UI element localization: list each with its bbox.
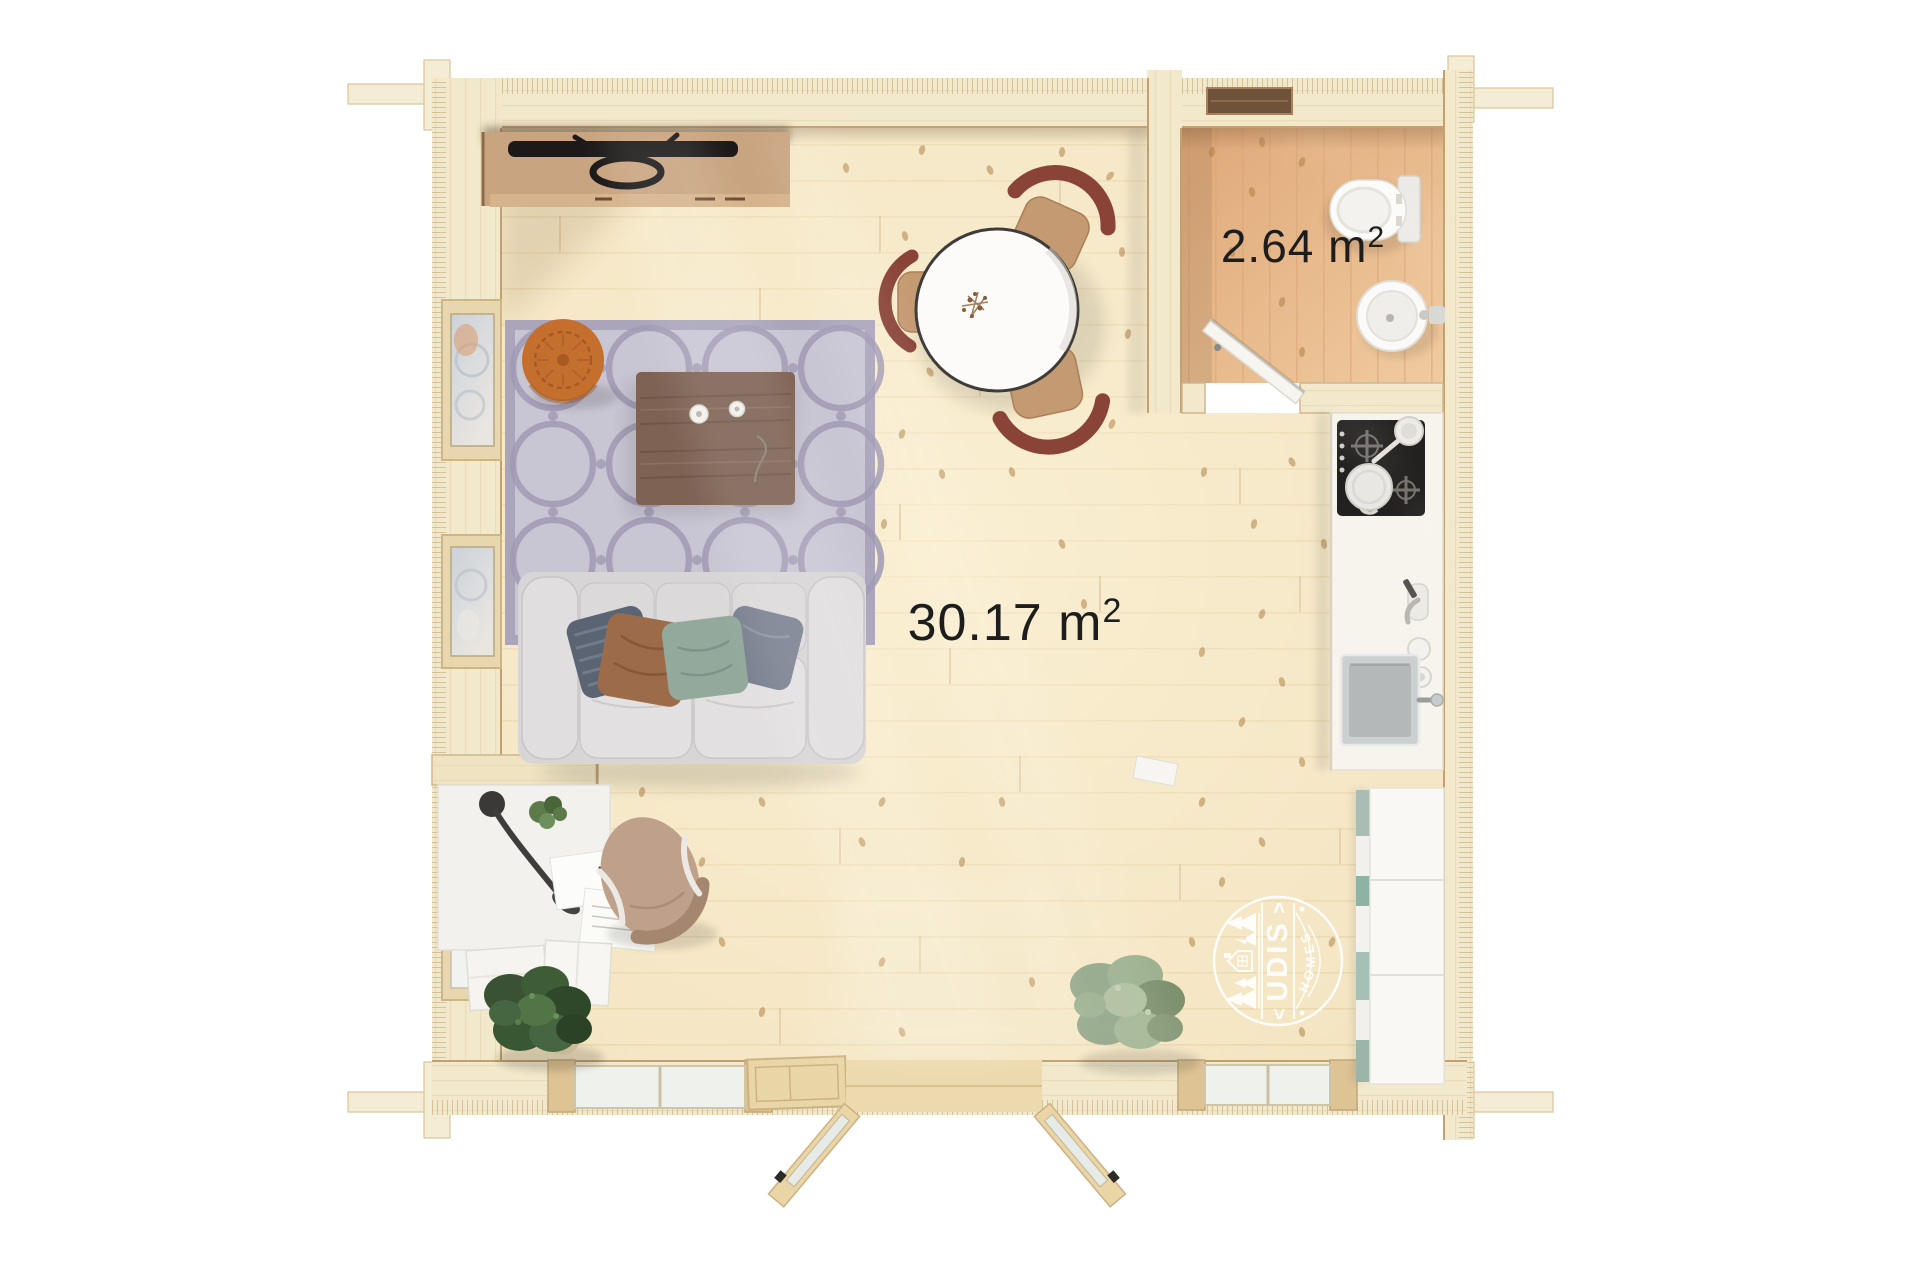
bathroom-shadow-left xyxy=(1182,128,1212,383)
floor-plan-render: UDIS < > HOMES 30.17 m2 2.64 m2 xyxy=(0,0,1920,1280)
entry-doors xyxy=(764,1100,1130,1207)
sofa-armrest-left xyxy=(522,577,578,759)
wall-door-panel xyxy=(747,1056,847,1109)
bottom-window-right xyxy=(1178,1060,1357,1110)
bathroom-bottom-wall xyxy=(1182,383,1443,413)
watermark-brand: UDIS xyxy=(1262,920,1294,1001)
dining-table xyxy=(916,229,1078,391)
left-window-lower xyxy=(442,535,501,668)
left-window-upper xyxy=(442,300,501,460)
sink-tap xyxy=(1429,306,1445,324)
watermark-chevron-right: > xyxy=(1269,902,1291,914)
bathroom-partition-wall xyxy=(1147,70,1182,413)
right-wall xyxy=(1443,70,1473,1140)
wardrobe xyxy=(1352,788,1444,1084)
top-wall xyxy=(432,78,1467,128)
pillow-sage xyxy=(661,614,750,701)
main-area-label: 30.17 m2 xyxy=(908,592,1123,652)
entry-door-right xyxy=(1034,1100,1130,1207)
bathroom-area-label: 2.64 m2 xyxy=(1221,220,1385,272)
partition-floor-shadow xyxy=(1128,128,1147,413)
wardrobe-body xyxy=(1370,788,1444,1084)
entry-door-left xyxy=(764,1100,860,1207)
shelf-items xyxy=(1356,790,1370,1082)
watermark-chevron-left: < xyxy=(1269,1008,1291,1020)
floor-plan-svg: UDIS < > HOMES 30.17 m2 2.64 m2 xyxy=(0,0,1920,1280)
